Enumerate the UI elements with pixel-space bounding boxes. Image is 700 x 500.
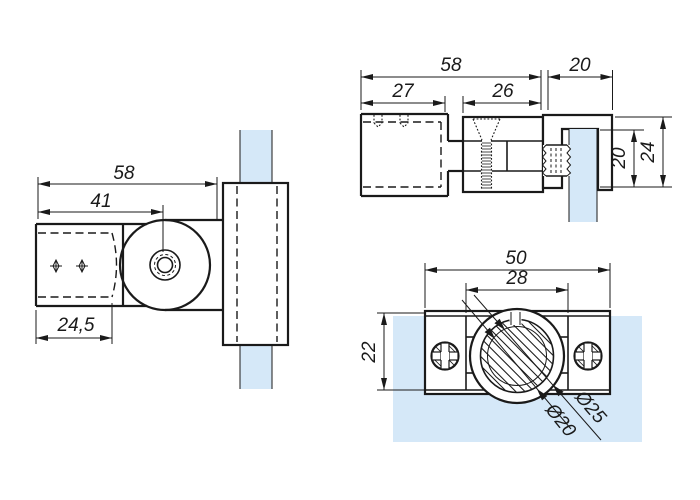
pivot-knuckle	[120, 220, 223, 310]
dim-top-26: 26	[463, 81, 541, 113]
dim-label: 58	[440, 55, 462, 76]
dim-side-24-5: 24,5	[36, 303, 112, 344]
set-screw	[543, 145, 571, 176]
dim-label: 41	[90, 191, 111, 212]
side-view: 58 41 24,5	[36, 130, 288, 389]
drawing-canvas: 58 41 24,5	[0, 0, 700, 500]
dim-label: 20	[568, 55, 591, 76]
dim-front-28: 28	[466, 268, 568, 313]
dim-side-58: 58	[38, 163, 217, 219]
dim-label: 58	[113, 163, 135, 184]
dim-label: 24,5	[57, 315, 95, 336]
glass-panel-top	[569, 129, 597, 222]
dim-label: 22	[359, 341, 380, 364]
top-view: 58 20 27 26 20 24	[361, 55, 672, 222]
dim-label: 50	[505, 248, 527, 269]
dim-label: 28	[505, 268, 528, 289]
dim-top-20-width: 20	[548, 55, 613, 110]
setscrew-position-marks	[50, 260, 88, 272]
dim-label: 20	[609, 147, 630, 170]
glass-clamp-side	[223, 183, 288, 345]
dim-top-58: 58	[361, 55, 541, 110]
technical-drawing: 58 41 24,5	[0, 0, 700, 500]
dim-top-27: 27	[361, 81, 445, 112]
dim-label: 27	[391, 81, 415, 102]
dim-label: 26	[491, 81, 514, 102]
front-view: Ø20 Ø25 50 28 22	[359, 248, 642, 442]
dim-label: 24	[638, 141, 659, 163]
tube-socket-top	[361, 114, 448, 196]
